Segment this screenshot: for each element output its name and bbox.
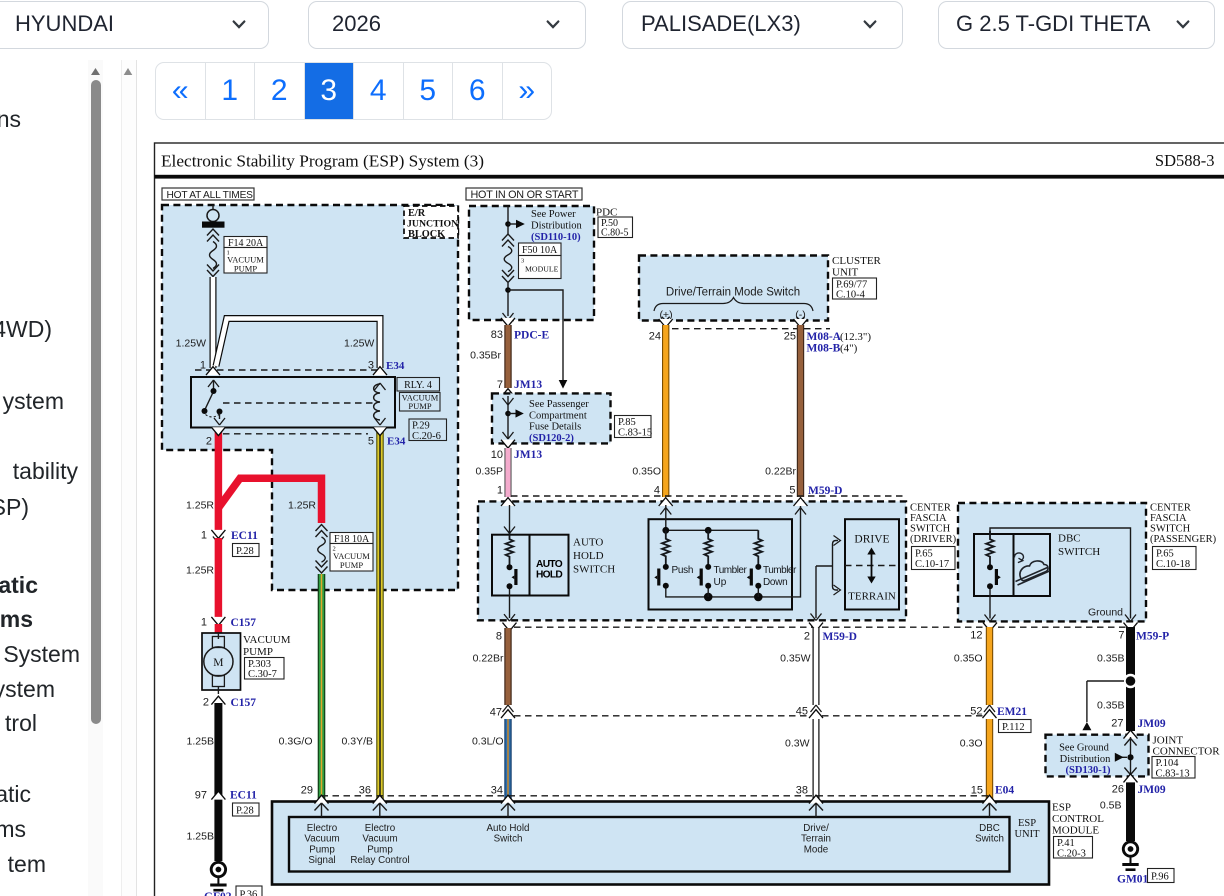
svg-text:C.20-3: C.20-3: [1057, 849, 1086, 860]
svg-text:36: 36: [359, 785, 371, 797]
svg-text:See Ground: See Ground: [1059, 743, 1110, 754]
svg-text:Electronic Stability Program (: Electronic Stability Program (ESP) Syste…: [161, 152, 484, 171]
svg-text:10: 10: [491, 449, 503, 461]
svg-text:C.83-15: C.83-15: [618, 428, 652, 439]
svg-text:GM01: GM01: [1117, 874, 1149, 886]
svg-text:0.35O: 0.35O: [632, 466, 661, 478]
svg-text:0.22Br: 0.22Br: [765, 466, 796, 478]
svg-text:M59-P: M59-P: [1136, 631, 1169, 643]
svg-text:VACUUM: VACUUM: [243, 634, 291, 646]
svg-text:38: 38: [796, 785, 808, 797]
svg-text:(DRIVER): (DRIVER): [910, 534, 957, 545]
svg-text:0.22Br: 0.22Br: [473, 653, 504, 665]
svg-text:Electro: Electro: [365, 823, 396, 834]
svg-text:BLOCK: BLOCK: [408, 229, 445, 240]
svg-text:JUNCTION: JUNCTION: [407, 219, 458, 230]
svg-text:0.35B: 0.35B: [1097, 653, 1124, 665]
svg-text:(4"): (4"): [840, 343, 858, 355]
svg-text:Distribution: Distribution: [531, 221, 583, 232]
svg-text:1: 1: [201, 530, 207, 542]
svg-text:CONTROL: CONTROL: [1052, 813, 1104, 825]
svg-text:DRIVE: DRIVE: [854, 534, 889, 546]
svg-text:Terrain: Terrain: [801, 834, 831, 845]
svg-text:0.35W: 0.35W: [780, 653, 810, 665]
svg-text:P.28: P.28: [236, 806, 254, 817]
svg-text:RLY. 4: RLY. 4: [404, 380, 432, 391]
svg-text:Electro: Electro: [307, 823, 338, 834]
svg-text:P.85: P.85: [618, 417, 636, 428]
svg-text:M08-B: M08-B: [807, 343, 841, 355]
svg-text:Switch: Switch: [494, 834, 523, 845]
svg-text:PUMP: PUMP: [243, 646, 273, 658]
svg-text:Up: Up: [714, 577, 727, 588]
svg-text:P.96: P.96: [1151, 872, 1169, 883]
svg-text:P.41: P.41: [1057, 838, 1075, 849]
svg-text:2: 2: [206, 436, 212, 448]
svg-text:C157: C157: [231, 617, 257, 629]
svg-text:P.65: P.65: [915, 548, 933, 559]
svg-text:C.10-4: C.10-4: [836, 290, 866, 301]
svg-text:7: 7: [497, 379, 503, 391]
svg-text:0.35Br: 0.35Br: [470, 350, 501, 362]
svg-text:MODULE: MODULE: [1052, 825, 1099, 837]
svg-text:0.3Y/B: 0.3Y/B: [341, 736, 373, 748]
svg-text:0.3W: 0.3W: [785, 738, 810, 750]
svg-text:Drive/: Drive/: [803, 823, 829, 834]
svg-text:JM09: JM09: [1138, 718, 1166, 730]
svg-text:Auto Hold: Auto Hold: [486, 823, 529, 834]
svg-text:(SD120-2): (SD120-2): [529, 433, 574, 444]
svg-text:0.35O: 0.35O: [954, 653, 983, 665]
svg-text:PUMP: PUMP: [408, 401, 431, 411]
svg-text:2: 2: [203, 697, 209, 709]
svg-text:HOT IN ON OR START: HOT IN ON OR START: [471, 189, 579, 201]
svg-text:0.3G/O: 0.3G/O: [279, 736, 313, 748]
svg-text:MODULE: MODULE: [525, 265, 559, 274]
svg-text:E34: E34: [386, 360, 405, 372]
svg-text:1.25R: 1.25R: [186, 500, 214, 512]
svg-text:Vacuum: Vacuum: [304, 834, 339, 845]
svg-text:Compartment: Compartment: [529, 410, 587, 421]
svg-text:P.104: P.104: [1156, 758, 1180, 769]
svg-text:E/R: E/R: [408, 208, 426, 219]
svg-text:SD588-3: SD588-3: [1155, 151, 1215, 170]
svg-text:Down: Down: [763, 577, 787, 588]
svg-text:CENTER: CENTER: [1150, 503, 1191, 514]
svg-text:M: M: [213, 657, 223, 669]
svg-text:GF02: GF02: [204, 891, 232, 896]
svg-text:JM13: JM13: [514, 449, 542, 461]
svg-text:1: 1: [200, 360, 206, 372]
svg-text:See Passenger: See Passenger: [529, 399, 589, 410]
svg-text:(PASSENGER): (PASSENGER): [1150, 534, 1217, 545]
svg-text:1.25R: 1.25R: [186, 565, 214, 577]
svg-text:Ground: Ground: [1088, 607, 1123, 619]
svg-text:5: 5: [789, 485, 795, 497]
svg-text:HOLD: HOLD: [536, 570, 562, 581]
svg-text:P.112: P.112: [1002, 722, 1025, 733]
svg-text:83: 83: [491, 329, 503, 341]
svg-text:C.30-7: C.30-7: [248, 669, 277, 680]
svg-text:0.35P: 0.35P: [476, 466, 503, 478]
svg-text:AUTO: AUTO: [536, 559, 563, 570]
svg-text:ESP: ESP: [1018, 818, 1036, 829]
svg-text:EC11: EC11: [231, 530, 258, 542]
svg-text:24: 24: [649, 331, 661, 343]
svg-text:UNIT: UNIT: [1014, 829, 1040, 840]
svg-text:SWITCH: SWITCH: [1150, 524, 1191, 535]
svg-text:PDC-E: PDC-E: [514, 330, 549, 342]
svg-text:(SD130-1): (SD130-1): [1066, 765, 1111, 776]
svg-text:29: 29: [301, 785, 313, 797]
svg-text:Mode: Mode: [804, 844, 829, 855]
svg-text:Signal: Signal: [308, 855, 335, 866]
svg-text:2: 2: [804, 631, 810, 643]
svg-text:DBC: DBC: [1058, 533, 1081, 545]
svg-text:5: 5: [368, 436, 374, 448]
svg-text:15: 15: [971, 785, 983, 797]
svg-text:Relay Control: Relay Control: [350, 855, 409, 866]
svg-text:SWITCH: SWITCH: [573, 564, 615, 576]
svg-text:P.28: P.28: [236, 546, 254, 557]
svg-text:27: 27: [1111, 718, 1123, 730]
svg-text:1.25B: 1.25B: [187, 736, 214, 748]
svg-text:97: 97: [195, 790, 207, 802]
svg-text:Tumbler: Tumbler: [763, 565, 797, 576]
svg-text:C157: C157: [231, 697, 257, 709]
svg-text:UNIT: UNIT: [832, 267, 859, 279]
svg-text:P.36: P.36: [240, 890, 258, 896]
svg-text:C.10-17: C.10-17: [915, 559, 949, 570]
svg-text:0.35B: 0.35B: [1097, 700, 1124, 712]
svg-text:M59-D: M59-D: [808, 485, 843, 497]
svg-text:(12.3"): (12.3"): [840, 331, 871, 343]
svg-text:4: 4: [654, 485, 660, 497]
svg-text:Vacuum: Vacuum: [362, 834, 397, 845]
svg-text:TERRAIN: TERRAIN: [848, 591, 896, 603]
svg-text:Drive/Terrain Mode Switch: Drive/Terrain Mode Switch: [666, 287, 800, 299]
svg-text:Switch: Switch: [975, 834, 1004, 845]
svg-text:1.25R: 1.25R: [288, 500, 316, 512]
svg-text:1.25W: 1.25W: [176, 338, 206, 350]
svg-text:C.10-18: C.10-18: [1156, 559, 1190, 570]
svg-text:45: 45: [796, 706, 808, 718]
svg-text:P.29: P.29: [412, 420, 430, 431]
svg-text:HOT AT ALL TIMES: HOT AT ALL TIMES: [167, 190, 254, 201]
svg-text:CLUSTER: CLUSTER: [832, 255, 882, 267]
svg-text:F50 10A: F50 10A: [522, 245, 558, 256]
svg-text:Pump: Pump: [367, 844, 393, 855]
svg-text:Push: Push: [672, 565, 694, 576]
svg-text:FASCIA: FASCIA: [910, 513, 947, 524]
svg-text:3: 3: [521, 258, 524, 265]
svg-text:Fuse Details: Fuse Details: [529, 422, 581, 433]
svg-text:34: 34: [491, 785, 503, 797]
svg-text:JM13: JM13: [514, 379, 542, 391]
svg-text:ESP: ESP: [1052, 802, 1071, 814]
svg-text:EM21: EM21: [997, 706, 1027, 718]
svg-text:M08-A: M08-A: [807, 331, 842, 343]
svg-text:HOLD: HOLD: [573, 550, 604, 562]
svg-text:E04: E04: [995, 785, 1014, 797]
svg-text:SWITCH: SWITCH: [1058, 546, 1100, 558]
svg-text:Distribution: Distribution: [1060, 754, 1112, 765]
svg-text:7: 7: [1118, 630, 1124, 642]
svg-text:Pump: Pump: [309, 844, 335, 855]
svg-text:47: 47: [490, 707, 502, 719]
svg-text:8: 8: [496, 631, 502, 643]
svg-text:CENTER: CENTER: [910, 503, 951, 514]
svg-text:26: 26: [1112, 784, 1124, 796]
svg-text:AUTO: AUTO: [573, 537, 603, 549]
svg-text:3: 3: [368, 360, 374, 372]
svg-text:SWITCH: SWITCH: [910, 524, 951, 535]
svg-text:Tumbler: Tumbler: [714, 565, 748, 576]
svg-text:1: 1: [201, 617, 207, 629]
svg-text:0.5B: 0.5B: [1100, 800, 1122, 812]
svg-text:(SD110-10): (SD110-10): [531, 232, 581, 243]
svg-text:1.25W: 1.25W: [344, 338, 374, 350]
svg-text:See Power: See Power: [531, 209, 576, 220]
svg-text:1.25B: 1.25B: [187, 831, 214, 843]
svg-text:PUMP: PUMP: [340, 560, 363, 570]
svg-text:FASCIA: FASCIA: [1150, 513, 1187, 524]
svg-text:12: 12: [970, 630, 982, 642]
svg-text:0.3L/O: 0.3L/O: [472, 736, 504, 748]
svg-text:C.20-6: C.20-6: [412, 431, 441, 442]
svg-text:EC11: EC11: [230, 790, 257, 802]
svg-text:E34: E34: [387, 436, 406, 448]
svg-text:DBC: DBC: [979, 823, 1000, 834]
svg-text:PUMP: PUMP: [234, 264, 257, 274]
svg-text:C.83-13: C.83-13: [1156, 768, 1190, 779]
svg-text:P.65: P.65: [1156, 548, 1174, 559]
svg-text:25: 25: [784, 331, 796, 343]
svg-text:52: 52: [970, 706, 982, 718]
svg-text:0.3O: 0.3O: [960, 738, 983, 750]
svg-text:M59-D: M59-D: [823, 631, 858, 643]
svg-text:1: 1: [497, 485, 503, 497]
svg-text:C.80-5: C.80-5: [601, 228, 629, 239]
svg-text:JM09: JM09: [1138, 784, 1166, 796]
svg-text:CONNECTOR: CONNECTOR: [1153, 746, 1221, 758]
